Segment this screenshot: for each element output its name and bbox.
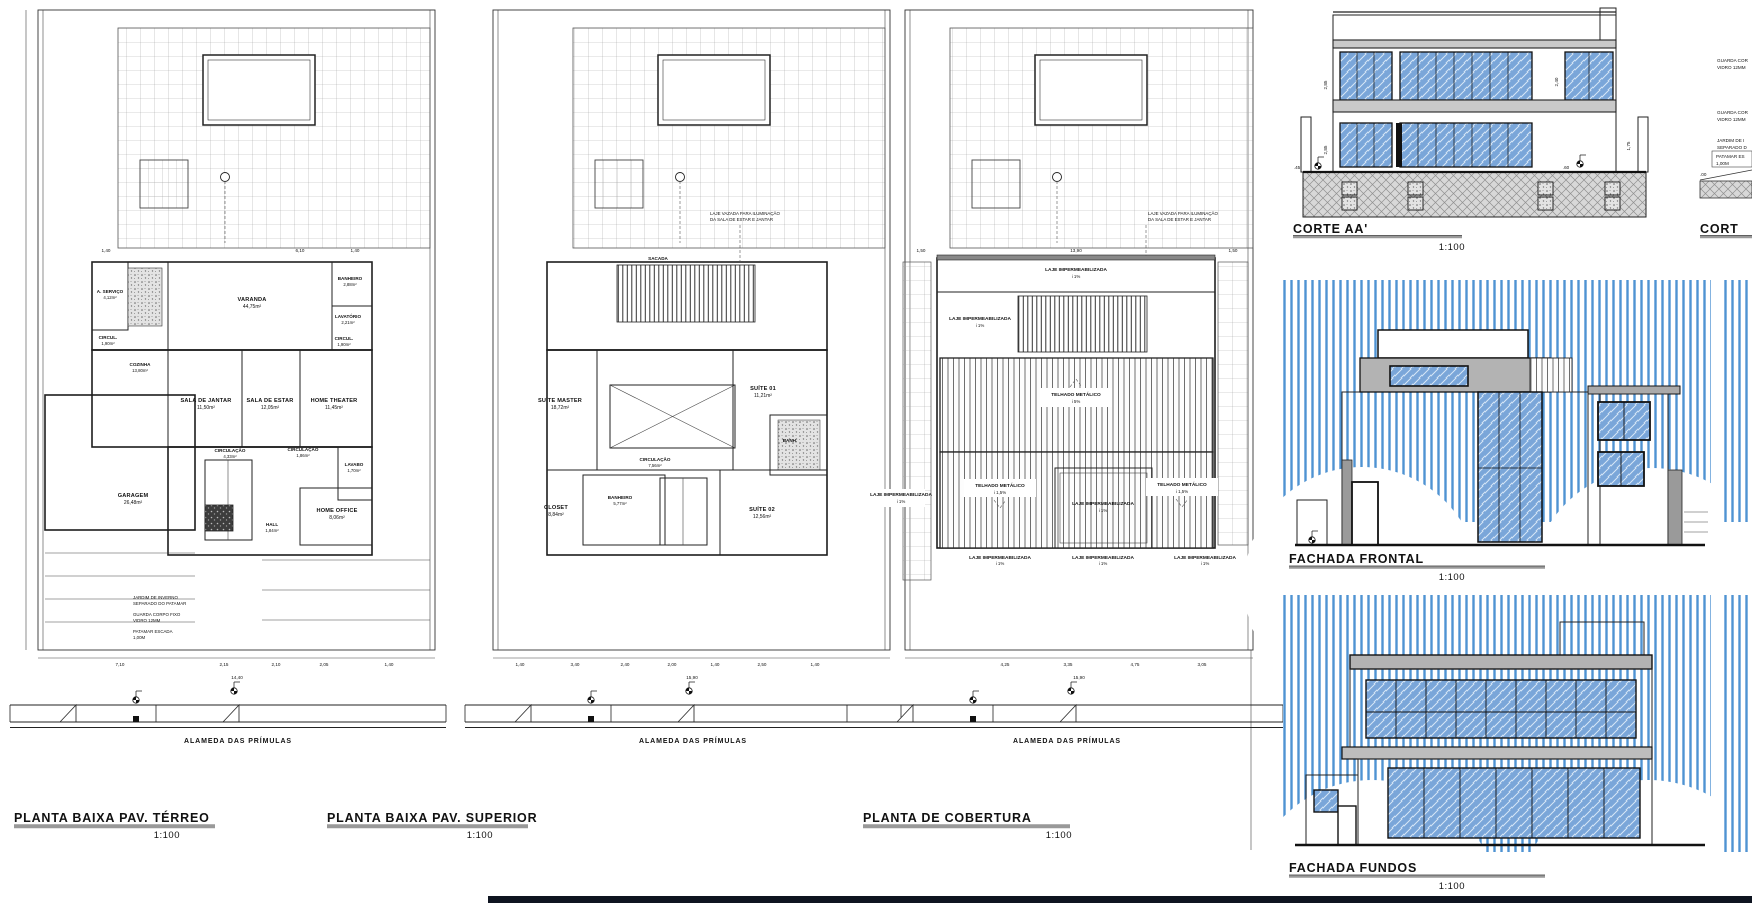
elevation-title: Fachada fundos <box>1289 861 1417 875</box>
note-line: Guarda cor <box>1717 110 1749 115</box>
dim: 4,75 <box>1131 662 1140 667</box>
terreo-notes: Jardim de inverno separado do patamar Gu… <box>133 595 186 640</box>
dim: 1,40 <box>385 662 394 667</box>
room-area: 12,56m² <box>753 514 772 520</box>
roof-label: i 1% <box>897 499 906 504</box>
room-area: 44,75m² <box>243 304 262 310</box>
room-label: Suíte 01 <box>750 384 776 392</box>
dim: 2,85 <box>1323 80 1328 89</box>
plan-superior: Sacada Suíte Master 18,72m² Suíte 01 11,… <box>465 10 901 745</box>
dim: 2,40 <box>1554 77 1559 86</box>
room-area: 11,45m² <box>325 405 343 411</box>
note-line: Patamar escada <box>133 629 173 634</box>
plan-cobertura: Laje impermeabilizada i 1% Laje impermea… <box>847 10 1283 850</box>
roof-label: Telhado metálico <box>975 482 1025 489</box>
room-label: Lavatório <box>335 312 361 319</box>
room-area: 8,06m² <box>329 515 345 521</box>
room-label: Suíte 02 <box>749 505 775 513</box>
dim: 3,40 <box>571 662 580 667</box>
plan-title: Planta baixa pav. Superior <box>327 811 537 825</box>
room-area: 1,70m² <box>347 468 361 473</box>
dim: 2,10 <box>272 662 281 667</box>
dim: 2,15 <box>220 662 229 667</box>
note-line: Jardim de i <box>1717 138 1744 143</box>
room-label: Home Office <box>316 508 357 514</box>
room-label: Circulação <box>215 447 246 453</box>
roof-label: Telhado metálico <box>1051 391 1101 398</box>
roof-label: Laje impermeabilizada <box>949 316 1011 322</box>
note-line: vidro 12mm <box>1717 117 1746 122</box>
room-label: Circulação <box>288 446 319 452</box>
street-label: Alameda das Prímulas <box>639 736 747 745</box>
dim: 2,00 <box>668 662 677 667</box>
note-line: da sala de estar e jantar <box>1148 217 1211 222</box>
note-line: da sala de estar e jantar <box>710 217 773 222</box>
dim: 1,75 <box>1626 141 1631 150</box>
dim: 3,05 <box>1198 662 1207 667</box>
room-label: Banh. <box>783 438 798 443</box>
note-line: Patamar es <box>1716 154 1745 159</box>
room-area: 11,50m² <box>197 405 215 411</box>
room-label: Garagem <box>118 493 149 499</box>
note-line: Laje vazada para iluminação <box>1148 211 1218 216</box>
section-title: Cort <box>1700 222 1739 236</box>
room-area: 1,86m² <box>296 453 310 458</box>
note-line: Guarda corpo fixo <box>133 612 181 617</box>
drawing-sheet: A. Serviço 4,12m² Cozinha 13,80m² Varand… <box>0 0 1752 903</box>
room-label: Closet <box>544 505 568 511</box>
dim: 1,40 <box>102 248 111 253</box>
note-line: Guarda cor <box>1717 58 1749 63</box>
room-area: 13,80m² <box>132 368 148 373</box>
dim: 3,35 <box>1064 662 1073 667</box>
elevation-title: Fachada Frontal <box>1289 552 1424 566</box>
room-label: Banheiro <box>608 495 633 500</box>
room-label: Sala de Jantar <box>181 398 232 404</box>
note-line: vidro 12mm <box>1717 65 1746 70</box>
margin-notes: Guarda cor vidro 12mm Guarda cor vidro 1… <box>1700 58 1752 177</box>
superior-dims: 1,40 3,40 2,40 2,00 1,40 2,50 1,40 15,90 <box>516 662 820 680</box>
roof-label: Laje impermeabilizada <box>870 492 932 498</box>
room-label: Varanda <box>238 297 267 303</box>
elevation-scale: 1:100 <box>1439 881 1465 892</box>
room-area: 8,84m² <box>548 512 564 518</box>
note-line: vidro 12mm <box>133 618 161 623</box>
section-corte-b-partial: Guarda cor vidro 12mm Guarda cor vidro 1… <box>1700 58 1752 237</box>
dim: 1,50 <box>917 248 926 253</box>
room-area: 1,90m² <box>337 342 351 347</box>
section-scale: 1:100 <box>1439 242 1465 253</box>
roof-label: i 1% <box>996 561 1005 566</box>
room-label: Sacada <box>648 256 668 261</box>
plan-titles: Planta baixa pav. Térreo 1:100 Planta ba… <box>14 810 1072 841</box>
plan-scale: 1:100 <box>154 830 180 841</box>
room-label: A. Serviço <box>97 289 124 294</box>
elevation-scale: 1:100 <box>1439 572 1465 583</box>
dim-total: 15,90 <box>686 675 698 680</box>
roof-label: i 1% <box>976 323 985 328</box>
room-label: Home Theater <box>311 398 358 404</box>
cad-canvas: A. Serviço 4,12m² Cozinha 13,80m² Varand… <box>0 0 1752 903</box>
plan-title: Planta de Cobertura <box>863 811 1032 825</box>
roof-label: i 5% <box>1072 399 1081 404</box>
dim-total: 14,40 <box>231 675 243 680</box>
room-area: 1,90m² <box>101 341 115 346</box>
plan-title: Planta baixa pav. Térreo <box>14 810 210 825</box>
room-label: Banheiro <box>338 276 363 281</box>
room-label: Circul. <box>335 336 354 341</box>
dim: 1,40 <box>811 662 820 667</box>
room-area: 12,05m² <box>261 405 280 411</box>
dim: 2,50 <box>758 662 767 667</box>
roof-label: i 1,5% <box>1176 489 1188 494</box>
note-line: separado do patamar <box>133 601 186 606</box>
dim: .45 <box>1294 165 1301 170</box>
roof-label: i 1% <box>1201 561 1210 566</box>
room-area: 18,72m² <box>551 405 570 411</box>
roof-label: Telhado metálico <box>1157 481 1207 488</box>
room-area: 2,88m² <box>343 282 357 287</box>
room-label: Sala de Estar <box>246 398 293 404</box>
dim: 1,40 <box>516 662 525 667</box>
room-area: 4,33m² <box>223 454 237 459</box>
dim: 7,10 <box>116 662 125 667</box>
room-label: Lavabo <box>345 462 364 467</box>
room-label: Cozinha <box>130 362 152 367</box>
dim: 2,05 <box>320 662 329 667</box>
dim: 6,10 <box>296 248 305 253</box>
dim: 4,25 <box>1001 662 1010 667</box>
dim: .60 <box>1563 165 1570 170</box>
dim: 13,90 <box>1070 248 1082 253</box>
roof-label: Laje impermeabilizada <box>1072 501 1134 507</box>
room-label: Hall <box>266 522 278 527</box>
street-label: Alameda das Prímulas <box>1013 736 1121 745</box>
room-area: 1,84m² <box>265 528 279 533</box>
note-line: 1,00m <box>133 635 146 640</box>
roof-label: i 1,5% <box>994 490 1006 495</box>
note-line: separado d <box>1717 145 1747 150</box>
room-area: 11,21m² <box>754 393 772 399</box>
street-label: Alameda das Prímulas <box>184 736 292 745</box>
room-area: 2,21m² <box>341 320 355 325</box>
room-label: Circul. <box>99 335 118 340</box>
note-line: Jardim de inverno <box>133 595 178 600</box>
level-value: .00 <box>1700 172 1707 177</box>
room-area: 4,12m² <box>103 295 117 300</box>
room-area: 7,56m² <box>648 463 662 468</box>
plan-scale: 1:100 <box>467 830 493 841</box>
roof-label: Laje impermeabilizada <box>1045 267 1107 273</box>
note-line: 1,00m <box>1716 161 1729 166</box>
plan-terreo: A. Serviço 4,12m² Cozinha 13,80m² Varand… <box>10 10 446 745</box>
section-corte-aa: 2,85 2,40 2,85 1,75 .60 .45 Corte AA' 1:… <box>1293 8 1648 253</box>
room-label: Suíte Master <box>538 396 582 404</box>
dim: 1,40 <box>711 662 720 667</box>
dim-total: 15,90 <box>1073 675 1085 680</box>
room-area: 26,48m² <box>124 500 143 506</box>
roof-label: i 1% <box>1072 274 1081 279</box>
section-title: Corte AA' <box>1293 222 1368 236</box>
dim: 2,85 <box>1323 145 1328 154</box>
roof-label: i 1% <box>1099 561 1108 566</box>
dim: 2,40 <box>621 662 630 667</box>
plan-scale: 1:100 <box>1046 830 1072 841</box>
elevation-fundos: Fachada fundos 1:100 <box>1247 595 1752 903</box>
dim: 1,50 <box>1229 248 1238 253</box>
dim: 1,40 <box>351 248 360 253</box>
room-label: Circulação <box>640 456 671 462</box>
taskbar-sliver[interactable] <box>488 896 1752 903</box>
roof-label: i 1% <box>1099 508 1108 513</box>
note-line: Laje vazada para iluminação <box>710 211 780 216</box>
room-area: 5,77m² <box>613 501 627 506</box>
